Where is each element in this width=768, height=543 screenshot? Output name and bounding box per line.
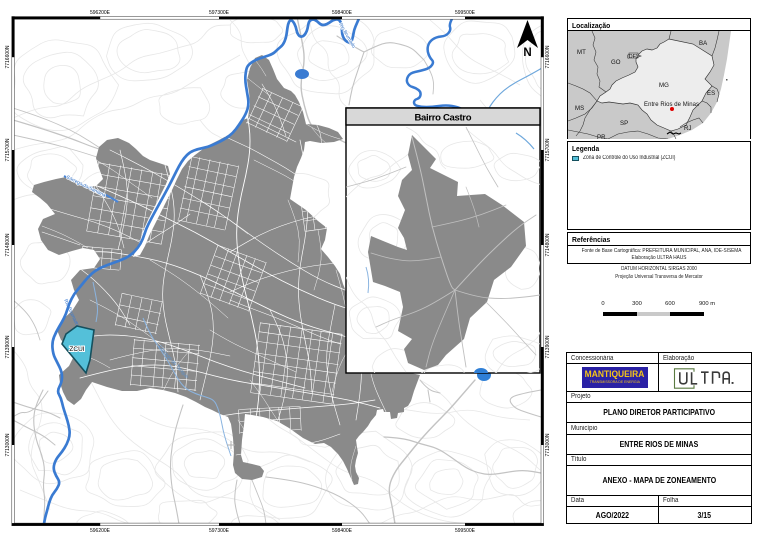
svg-text:7714800N: 7714800N: [545, 233, 551, 256]
svg-text:N: N: [523, 47, 531, 59]
svg-text:7713000N: 7713000N: [545, 433, 551, 456]
svg-text:ZCUI: ZCUI: [69, 346, 84, 353]
svg-text:597300E: 597300E: [209, 10, 230, 16]
svg-text:(DF): (DF): [627, 54, 638, 60]
svg-text:7716600N: 7716600N: [5, 45, 11, 68]
svg-text:597300E: 597300E: [209, 528, 230, 534]
svg-text:MG: MG: [659, 82, 669, 89]
svg-text:7715700N: 7715700N: [5, 138, 11, 161]
svg-text:PR: PR: [597, 134, 606, 139]
svg-text:598400E: 598400E: [332, 10, 353, 16]
svg-text:7713900N: 7713900N: [5, 335, 11, 358]
svg-text:596200E: 596200E: [90, 528, 111, 534]
svg-text:ES: ES: [707, 90, 715, 97]
svg-text:7715700N: 7715700N: [545, 138, 551, 161]
svg-text:GO: GO: [611, 59, 621, 66]
svg-text:599500E: 599500E: [455, 528, 476, 534]
svg-text:MS: MS: [575, 105, 584, 112]
svg-text:MT: MT: [577, 49, 586, 56]
svg-text:7716600N: 7716600N: [545, 45, 551, 68]
svg-text:596200E: 596200E: [90, 10, 111, 16]
svg-text:7713000N: 7713000N: [5, 433, 11, 456]
svg-text:7714800N: 7714800N: [5, 233, 11, 256]
svg-text:7713900N: 7713900N: [545, 335, 551, 358]
svg-text:SP: SP: [620, 120, 628, 127]
svg-text:598400E: 598400E: [332, 528, 353, 534]
svg-text:BA: BA: [699, 40, 708, 47]
svg-text:599500E: 599500E: [455, 10, 476, 16]
svg-text:RJ: RJ: [684, 125, 691, 132]
svg-text:Bairro Castro: Bairro Castro: [415, 113, 472, 124]
